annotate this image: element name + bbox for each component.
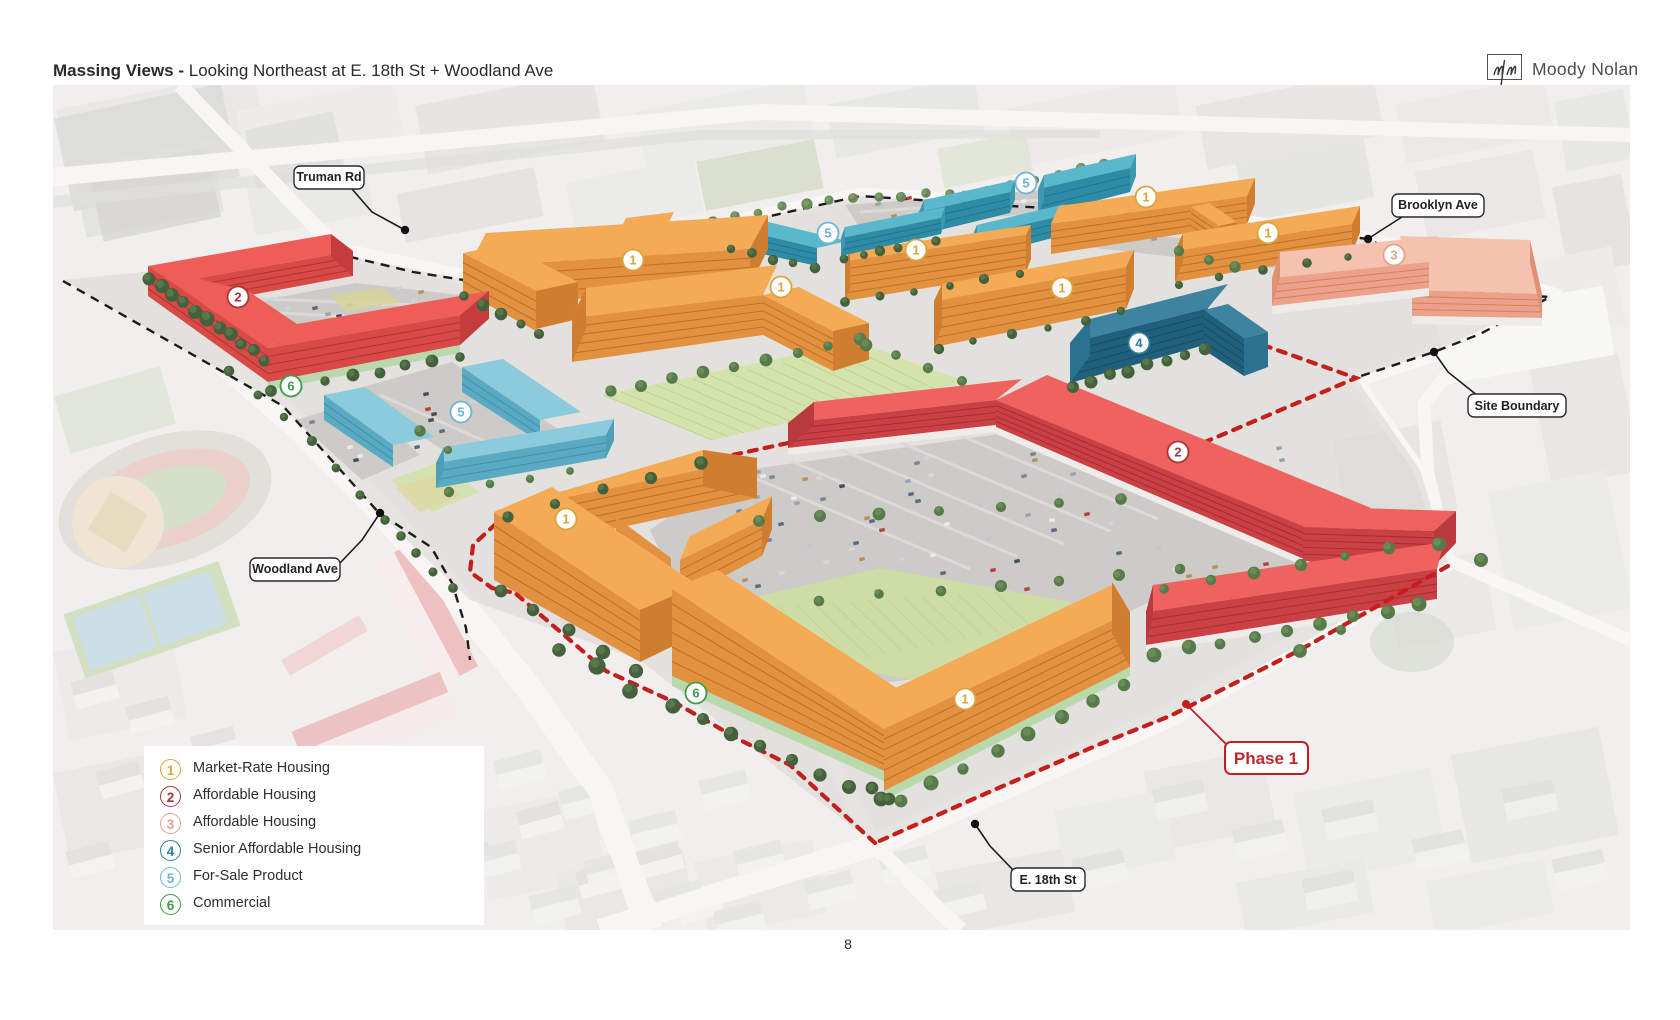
svg-text:Truman Rd: Truman Rd	[296, 170, 361, 184]
svg-text:Site Boundary: Site Boundary	[1475, 399, 1560, 413]
svg-text:5: 5	[457, 404, 464, 419]
svg-text:5: 5	[824, 225, 831, 240]
svg-text:1: 1	[562, 511, 569, 526]
svg-text:6: 6	[287, 378, 294, 393]
svg-text:Phase 1: Phase 1	[1234, 749, 1298, 768]
svg-text:1: 1	[629, 252, 636, 267]
svg-text:3: 3	[1390, 247, 1397, 262]
svg-text:1: 1	[1264, 225, 1271, 240]
svg-text:E. 18th St: E. 18th St	[1020, 873, 1078, 887]
svg-text:5: 5	[1022, 175, 1029, 190]
svg-text:2: 2	[234, 289, 241, 304]
svg-text:Brooklyn Ave: Brooklyn Ave	[1398, 198, 1478, 212]
svg-text:1: 1	[777, 279, 784, 294]
svg-text:1: 1	[1142, 189, 1149, 204]
svg-text:2: 2	[1174, 444, 1181, 459]
svg-text:6: 6	[692, 685, 699, 700]
svg-text:1: 1	[1058, 280, 1065, 295]
svg-text:4: 4	[1135, 335, 1143, 350]
svg-text:Woodland Ave: Woodland Ave	[252, 562, 338, 576]
svg-text:1: 1	[961, 691, 968, 706]
svg-text:1: 1	[912, 242, 919, 257]
